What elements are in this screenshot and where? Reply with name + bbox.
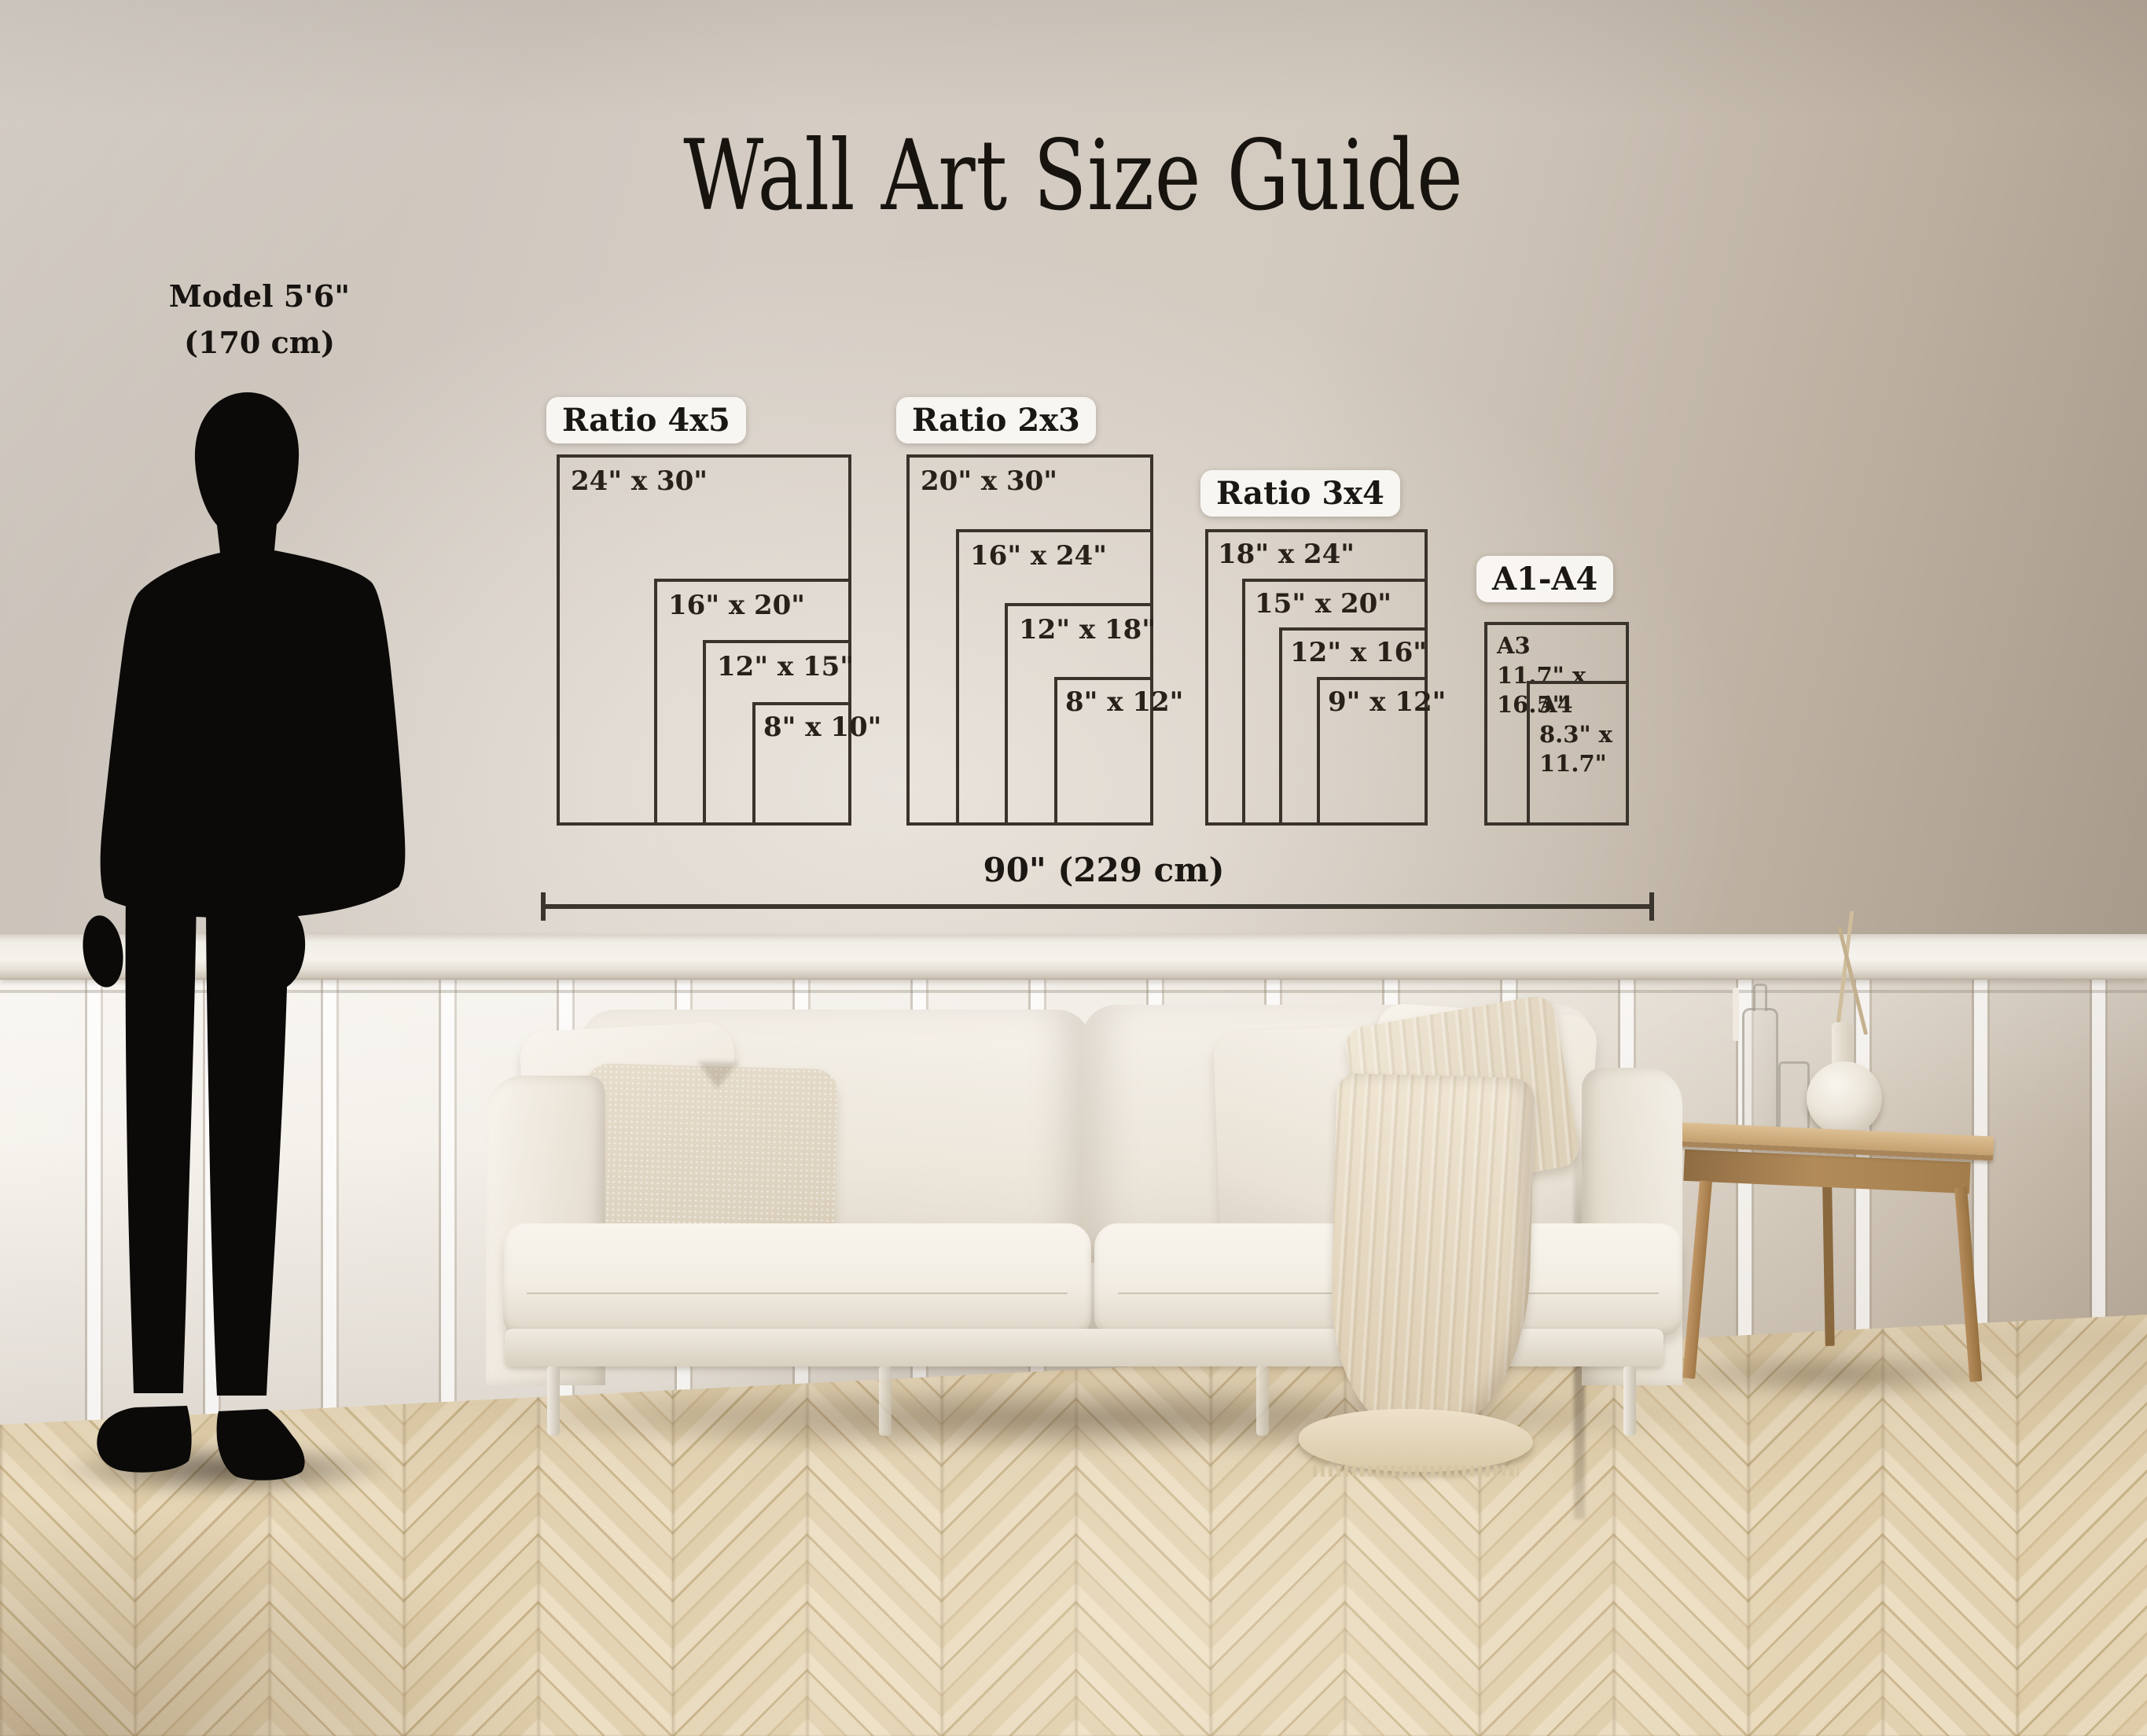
silhouette-left-leg xyxy=(126,892,197,1393)
a3-name: A3 xyxy=(1497,631,1616,661)
wall-width-label: 90" (229 cm) xyxy=(868,851,1340,889)
group-label-a-series: A1-A4 xyxy=(1476,556,1613,602)
size-group-ratio-4x5: Ratio 4x5 24" x 30" 16" x 20" 12" x 15" … xyxy=(557,454,851,826)
page-title: Wall Art Size Guide xyxy=(215,120,1932,233)
a4-name: A4 xyxy=(1539,690,1612,720)
silhouette-head-torso xyxy=(101,392,406,918)
size-group-ratio-3x4: Ratio 3x4 18" x 24" 15" x 20" 12" x 16" … xyxy=(1205,529,1428,826)
model-height-line2: (170 cm) xyxy=(90,320,428,366)
ruler-end-cap-right xyxy=(1649,892,1654,921)
size-rect-9x12: 9" x 12" xyxy=(1317,677,1428,826)
silhouette-left-shoe xyxy=(97,1406,191,1473)
silhouette-right-shoe xyxy=(217,1409,305,1480)
model-height-line1: Model 5'6" xyxy=(90,274,428,320)
size-rect-8x12: 8" x 12" xyxy=(1054,677,1153,826)
silhouette-left-hand xyxy=(79,913,127,990)
size-rect-8x10: 8" x 10" xyxy=(752,702,851,826)
group-label-ratio-2x3: Ratio 2x3 xyxy=(896,397,1096,443)
group-label-ratio-3x4: Ratio 3x4 xyxy=(1200,470,1400,517)
ruler-end-cap-left xyxy=(541,892,546,921)
group-label-ratio-4x5: Ratio 4x5 xyxy=(546,397,746,443)
size-group-a-series: A1-A4 A3 11.7" x 16.5" A4 8.3" x 11.7" xyxy=(1484,622,1629,826)
model-height-label: Model 5'6" (170 cm) xyxy=(90,274,428,366)
wall-width-ruler xyxy=(541,904,1654,909)
size-group-ratio-2x3: Ratio 2x3 20" x 30" 16" x 24" 12" x 18" … xyxy=(906,454,1153,826)
wall-art-size-guide-scene: Wall Art Size Guide Model 5'6" (170 cm) … xyxy=(0,0,2147,1736)
size-rect-a4: A4 8.3" x 11.7" xyxy=(1527,681,1629,826)
a4-size-line2: 11.7" xyxy=(1539,749,1612,779)
a4-size-line1: 8.3" x xyxy=(1539,720,1612,750)
